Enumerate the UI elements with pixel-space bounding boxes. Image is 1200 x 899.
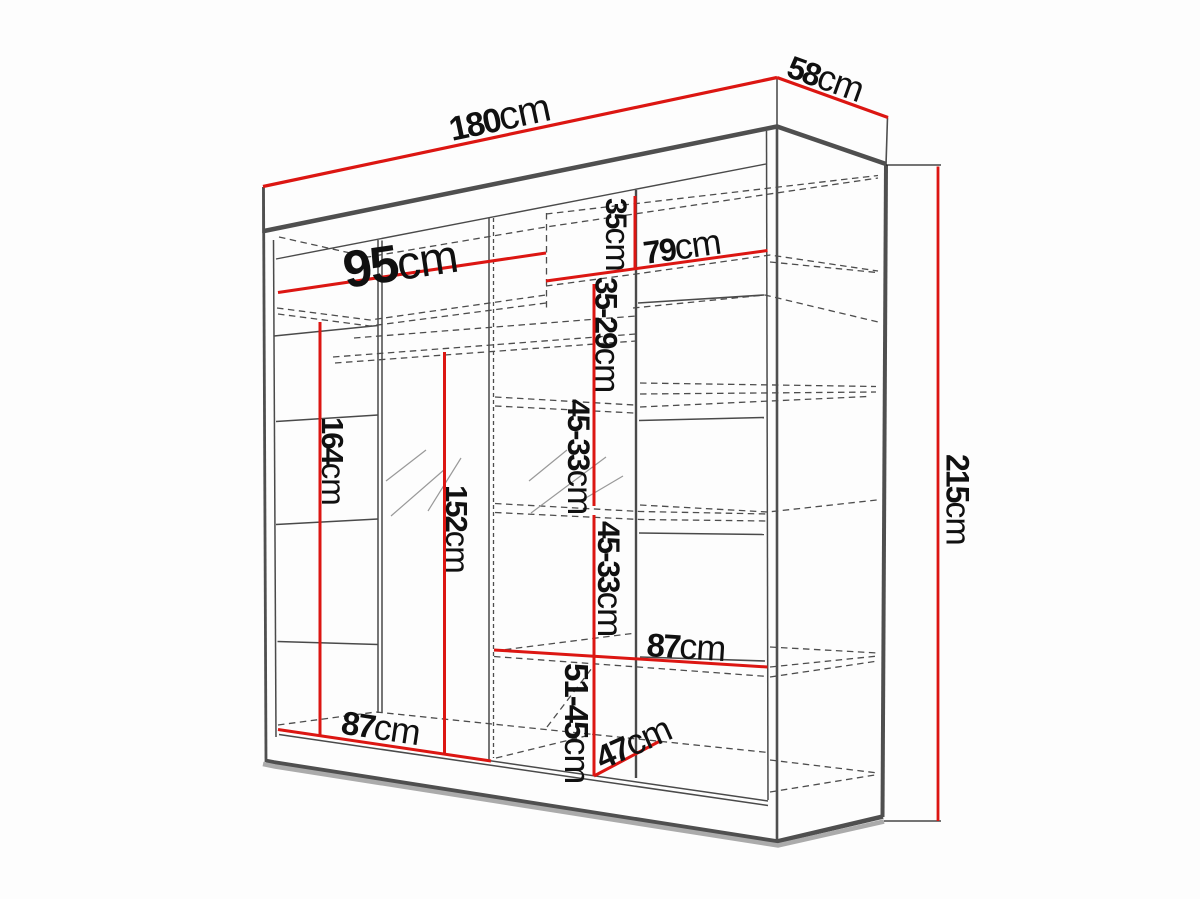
svg-text:152cm: 152cm bbox=[439, 485, 476, 573]
svg-text:87cm: 87cm bbox=[645, 623, 726, 669]
svg-text:164cm: 164cm bbox=[315, 417, 352, 505]
svg-text:51-45cm: 51-45cm bbox=[557, 663, 598, 783]
svg-text:35-29cm: 35-29cm bbox=[588, 277, 627, 392]
svg-text:35cm: 35cm bbox=[598, 198, 636, 271]
svg-text:215cm: 215cm bbox=[939, 454, 977, 545]
svg-text:45-33cm: 45-33cm bbox=[560, 399, 599, 514]
svg-text:45-33cm: 45-33cm bbox=[590, 521, 629, 636]
